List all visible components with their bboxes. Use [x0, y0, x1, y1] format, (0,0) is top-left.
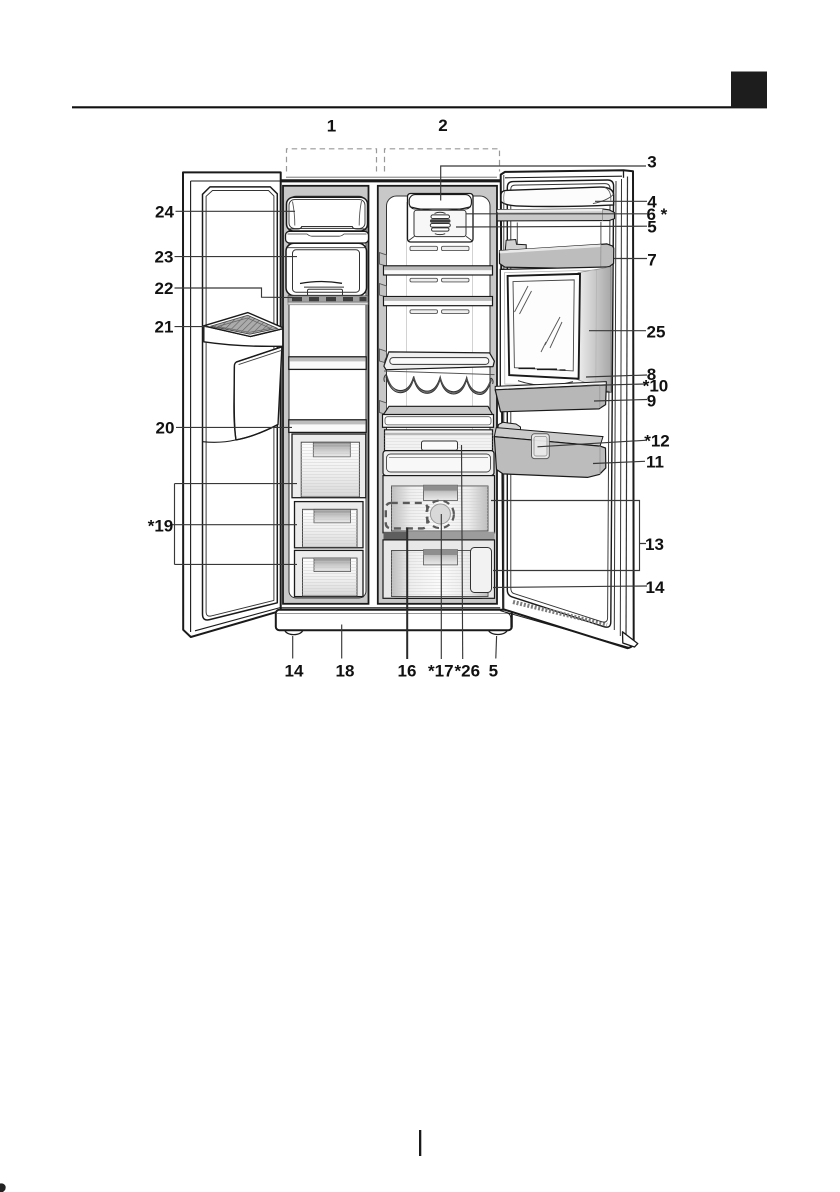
svg-text:18: 18 [336, 661, 355, 680]
svg-text:23: 23 [155, 248, 174, 267]
svg-text:22: 22 [155, 279, 174, 298]
svg-text:1: 1 [327, 117, 336, 136]
svg-text:16: 16 [398, 661, 417, 680]
svg-text:21: 21 [155, 318, 174, 337]
svg-text:*17: *17 [428, 661, 454, 680]
svg-text:2: 2 [438, 116, 447, 135]
svg-text:5: 5 [647, 217, 656, 236]
svg-text:5: 5 [489, 661, 498, 680]
svg-text:7: 7 [647, 250, 656, 269]
svg-text:3: 3 [647, 153, 656, 172]
svg-text:13: 13 [645, 535, 664, 554]
svg-text:24: 24 [155, 202, 174, 221]
svg-text:25: 25 [647, 322, 666, 341]
svg-text:9: 9 [647, 391, 656, 410]
svg-text:*26: *26 [455, 661, 481, 680]
svg-text:14: 14 [646, 578, 665, 597]
svg-text:*19: *19 [148, 517, 174, 536]
svg-text:20: 20 [156, 419, 175, 438]
svg-text:14: 14 [285, 661, 304, 680]
svg-text:*12: *12 [644, 431, 670, 450]
svg-text:11: 11 [646, 452, 664, 471]
